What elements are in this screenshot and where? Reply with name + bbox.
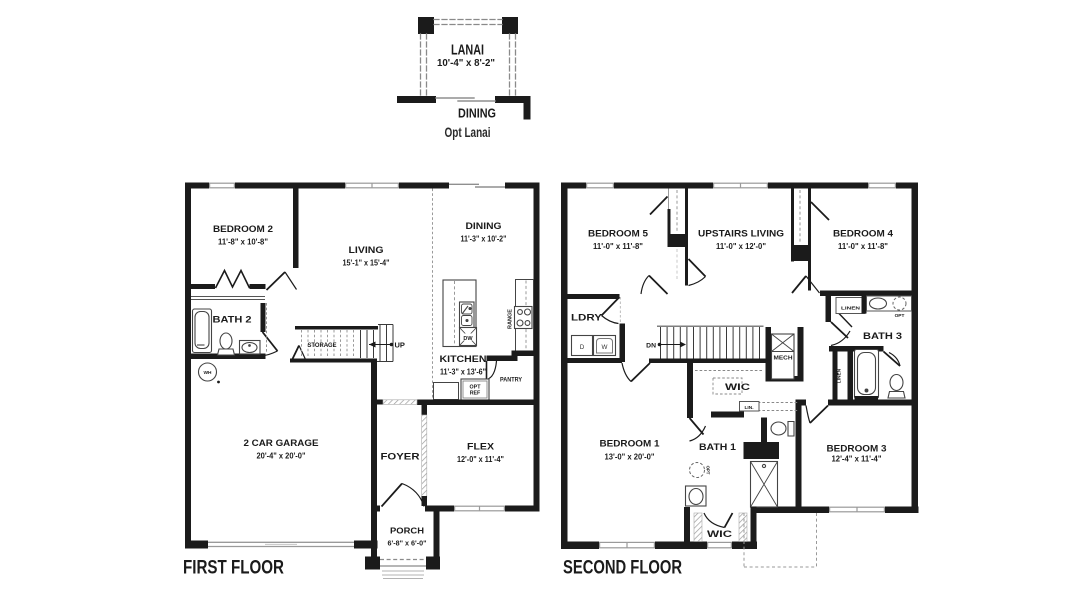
svg-text:BEDROOM 3: BEDROOM 3 bbox=[827, 444, 887, 455]
svg-text:OPT: OPT bbox=[895, 313, 905, 319]
svg-text:RANGE: RANGE bbox=[508, 309, 514, 329]
svg-text:LINEN: LINEN bbox=[841, 306, 861, 312]
svg-text:SECOND FLOOR: SECOND FLOOR bbox=[563, 557, 682, 579]
svg-text:LDRY: LDRY bbox=[571, 313, 603, 324]
svg-text:WH: WH bbox=[204, 370, 213, 376]
svg-text:FOYER: FOYER bbox=[381, 452, 420, 463]
svg-text:REF: REF bbox=[470, 391, 481, 397]
svg-text:BATH 3: BATH 3 bbox=[863, 331, 902, 342]
svg-text:DN: DN bbox=[646, 343, 656, 350]
svg-text:UP: UP bbox=[395, 341, 405, 350]
svg-text:D: D bbox=[580, 344, 585, 351]
svg-text:LIN.: LIN. bbox=[744, 405, 753, 411]
svg-text:BATH 2: BATH 2 bbox=[213, 315, 252, 326]
svg-text:11'-3" x 10'-2": 11'-3" x 10'-2" bbox=[461, 235, 507, 244]
svg-text:FIRST FLOOR: FIRST FLOOR bbox=[183, 557, 284, 579]
svg-text:BATH 1: BATH 1 bbox=[699, 442, 737, 453]
svg-text:12'-0" x 11'-4": 12'-0" x 11'-4" bbox=[457, 455, 504, 464]
svg-text:13'-0" x 20'-0": 13'-0" x 20'-0" bbox=[605, 453, 655, 462]
svg-text:FLEX: FLEX bbox=[467, 442, 495, 453]
svg-text:WIC: WIC bbox=[707, 529, 732, 540]
svg-text:11'-0" x 12'-0": 11'-0" x 12'-0" bbox=[716, 242, 766, 251]
svg-text:PORCH: PORCH bbox=[390, 526, 424, 536]
svg-text:KITCHEN: KITCHEN bbox=[440, 354, 487, 365]
svg-text:LIVING: LIVING bbox=[349, 245, 384, 256]
svg-text:OPT: OPT bbox=[706, 466, 711, 475]
svg-text:DINING: DINING bbox=[458, 106, 496, 121]
svg-text:BEDROOM 4: BEDROOM 4 bbox=[833, 229, 894, 240]
svg-text:W: W bbox=[602, 344, 608, 351]
svg-text:11'-3" x 13'-6": 11'-3" x 13'-6" bbox=[440, 368, 486, 377]
svg-text:BEDROOM 1: BEDROOM 1 bbox=[600, 439, 661, 450]
svg-text:LINEN: LINEN bbox=[837, 368, 843, 383]
svg-text:11'-0" x 11'-8": 11'-0" x 11'-8" bbox=[838, 242, 888, 251]
svg-text:11'-0" x 11'-8": 11'-0" x 11'-8" bbox=[593, 242, 643, 251]
svg-text:MECH: MECH bbox=[774, 356, 793, 362]
svg-text:11'-8" x 10'-8": 11'-8" x 10'-8" bbox=[218, 238, 268, 247]
svg-text:WIC: WIC bbox=[725, 382, 750, 393]
svg-text:6'-8" x 6'-0": 6'-8" x 6'-0" bbox=[388, 539, 427, 548]
svg-text:PANTRY: PANTRY bbox=[500, 377, 523, 384]
svg-text:2 CAR GARAGE: 2 CAR GARAGE bbox=[244, 438, 319, 449]
svg-text:UPSTAIRS LIVING: UPSTAIRS LIVING bbox=[698, 229, 784, 240]
svg-text:BEDROOM 2: BEDROOM 2 bbox=[213, 224, 273, 235]
svg-text:DW: DW bbox=[463, 336, 473, 342]
svg-text:DINING: DINING bbox=[466, 221, 502, 232]
svg-text:10'-4" x 8'-2": 10'-4" x 8'-2" bbox=[437, 57, 495, 69]
svg-text:20'-4" x 20'-0": 20'-4" x 20'-0" bbox=[257, 452, 306, 461]
svg-text:12'-4" x 11'-4": 12'-4" x 11'-4" bbox=[832, 455, 882, 464]
svg-text:BEDROOM 5: BEDROOM 5 bbox=[588, 229, 649, 240]
svg-text:STORAGE: STORAGE bbox=[308, 342, 338, 349]
svg-text:15'-1" x 15'-4": 15'-1" x 15'-4" bbox=[343, 259, 390, 268]
svg-text:Opt Lanai: Opt Lanai bbox=[445, 125, 491, 140]
